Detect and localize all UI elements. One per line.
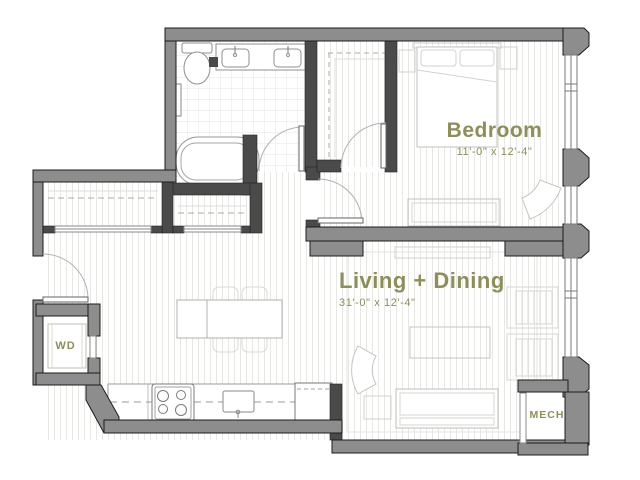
sofa	[396, 389, 498, 428]
closet-north-wall	[33, 170, 176, 182]
bedroom-living-wall	[306, 227, 583, 241]
wd-door	[90, 336, 96, 358]
ne-corner-pier	[563, 28, 589, 55]
bedroom-living-wall-chunk-r	[505, 241, 568, 256]
bed	[413, 43, 501, 147]
east-pier-2	[563, 149, 589, 186]
kitchen-south-wall	[104, 420, 342, 433]
vanity-end-panel	[209, 57, 218, 67]
bedroom-window-2	[565, 186, 577, 224]
mech-south-wall	[518, 443, 588, 455]
range-stove	[152, 384, 194, 422]
north-wall	[165, 28, 580, 41]
east-pier-3	[563, 224, 589, 258]
wd-east-wall-upper	[88, 304, 100, 336]
floor-plan: Bedroom 11'-0" x 12'-4" Living + Dining …	[0, 0, 640, 480]
toilet	[182, 43, 212, 84]
mech-door	[520, 393, 526, 443]
closet-b-floor	[173, 195, 250, 226]
bedroom-living-wall-chunk-l	[310, 241, 363, 256]
living-window	[565, 258, 577, 357]
bedroom-door-leaf	[318, 218, 363, 223]
mech-east-wall	[565, 392, 589, 445]
double-vanity	[216, 44, 306, 70]
bedroom-window	[565, 55, 577, 149]
bath-west-wall	[165, 41, 176, 171]
sliding-closet-doors	[55, 226, 241, 232]
west-wall-upper	[33, 182, 43, 256]
hallway-floor	[255, 172, 305, 233]
mech-closet-floor	[526, 392, 565, 443]
wall-niche	[176, 84, 181, 116]
entry-door-leaf	[43, 297, 88, 302]
floor-plan-drawing	[0, 0, 640, 480]
walkin-closet-floor	[322, 41, 385, 167]
mech-north-wall	[518, 380, 568, 392]
washer-dryer-unit	[48, 324, 86, 368]
dining-table	[177, 300, 282, 338]
bath-door-leaf	[299, 126, 304, 171]
closet-door-leaf	[381, 124, 386, 168]
closet-a-floor	[43, 182, 162, 226]
windows	[565, 55, 577, 357]
wd-south-wall	[36, 373, 100, 385]
